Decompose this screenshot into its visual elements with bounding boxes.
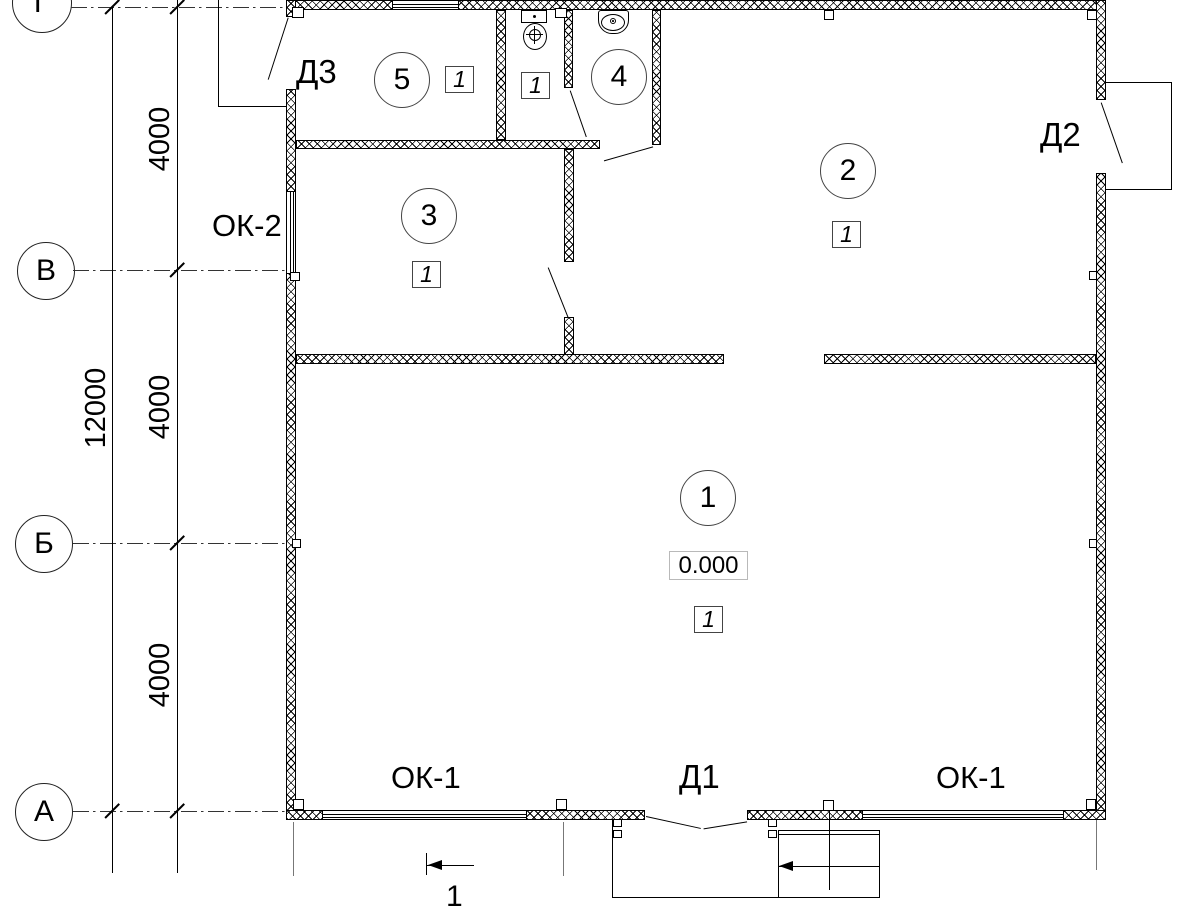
room-number-3: 3 xyxy=(401,188,457,244)
wall-junction-marker xyxy=(556,799,567,810)
door-jamb-marker xyxy=(768,830,777,838)
finish-mark-wc: 1 xyxy=(521,72,550,99)
wall-segment xyxy=(496,10,506,140)
dimension-seg-1: 4000 xyxy=(146,79,176,199)
elevation-mark: 0.000 xyxy=(669,551,748,580)
toilet-tank-dot xyxy=(533,15,536,18)
elevation-text: 0.000 xyxy=(678,552,738,580)
room-number-text: 5 xyxy=(394,63,411,97)
axis-marker-b: Б xyxy=(15,515,73,573)
axis-marker-a: А xyxy=(15,783,73,841)
window-label-ok1-left: ОК-1 xyxy=(391,762,461,793)
wall-junction-marker xyxy=(1086,799,1096,810)
wall-segment xyxy=(1096,173,1106,820)
toilet-bowl xyxy=(523,23,547,50)
dimension-line-overall xyxy=(112,7,113,873)
door-jamb-marker xyxy=(768,819,777,827)
room-number-text: 4 xyxy=(611,60,628,94)
axis-letter: В xyxy=(36,254,56,288)
toilet-drain-cross xyxy=(526,34,543,35)
axis-marker-v: В xyxy=(17,242,75,300)
finish-mark-room3: 1 xyxy=(412,261,441,288)
section-mark-arrow xyxy=(428,860,442,870)
dimension-seg-2: 4000 xyxy=(146,347,176,467)
room-number-text: 3 xyxy=(421,199,438,233)
toilet-drain xyxy=(529,29,541,41)
axis-line-a xyxy=(73,811,286,812)
room-number-4: 4 xyxy=(591,49,647,105)
wall-junction-marker xyxy=(292,7,304,18)
wall-junction-marker xyxy=(1089,539,1097,548)
wall-segment xyxy=(652,10,661,145)
wall-segment xyxy=(1063,810,1106,820)
sink-faucet xyxy=(610,18,616,24)
stair-direction-arrow xyxy=(779,861,793,871)
toilet-drain-cross xyxy=(534,26,535,44)
door-jamb-marker xyxy=(613,830,622,838)
door-leaf-room4 xyxy=(604,146,653,161)
wall-segment xyxy=(286,89,296,192)
room-number-1: 1 xyxy=(680,470,736,526)
porch-left-edge xyxy=(218,0,219,107)
porch-right-top xyxy=(1106,82,1172,83)
wall-junction-marker xyxy=(290,272,300,281)
extension-line xyxy=(293,822,294,876)
room-number-text: 2 xyxy=(840,154,857,188)
axis-line-v xyxy=(73,270,288,271)
door-leaf-d3 xyxy=(267,17,288,79)
door-leaf-room3 xyxy=(547,267,568,318)
wall-junction-marker xyxy=(1087,10,1097,20)
finish-mark-text: 1 xyxy=(702,606,715,633)
room-number-2: 2 xyxy=(820,143,876,199)
door-leaf-wc xyxy=(569,90,586,137)
axis-marker-g: Г xyxy=(12,0,72,33)
window-ok1-left xyxy=(323,810,526,820)
porch-right-edge xyxy=(1171,82,1172,190)
wall-junction-marker xyxy=(555,8,567,18)
door-label-d2: Д2 xyxy=(1040,118,1081,151)
finish-mark-text: 1 xyxy=(453,66,466,93)
door-jamb-marker xyxy=(613,819,622,827)
dimension-overall: 12000 xyxy=(82,328,112,488)
window-ok2 xyxy=(286,192,296,273)
wall-segment xyxy=(296,140,600,149)
wall-junction-marker xyxy=(1089,271,1097,280)
finish-mark-text: 1 xyxy=(420,261,433,288)
wall-junction-marker xyxy=(292,539,301,548)
wall-segment xyxy=(564,149,574,262)
axis-letter: Б xyxy=(34,527,54,561)
finish-mark-room1: 1 xyxy=(694,606,723,633)
dimension-seg-3: 4000 xyxy=(146,615,176,735)
section-mark-number: 1 xyxy=(446,882,463,912)
sink xyxy=(598,10,629,34)
porch-right-bottom xyxy=(1106,189,1172,190)
stair-center-line xyxy=(829,811,830,890)
finish-mark-room5: 1 xyxy=(445,66,474,93)
wall-segment xyxy=(564,10,573,88)
wall-junction-marker xyxy=(823,800,834,811)
porch-left-bottom xyxy=(218,106,287,107)
axis-line-b xyxy=(73,543,291,544)
window-ok1-right xyxy=(863,810,1063,820)
wall-segment xyxy=(564,317,574,355)
door-leaf-d1-right xyxy=(703,821,747,829)
door-leaf-d2 xyxy=(1100,102,1122,163)
toilet-tank xyxy=(521,10,547,23)
wall-segment xyxy=(824,354,1096,364)
room-number-text: 1 xyxy=(700,481,717,515)
wall-segment xyxy=(296,354,724,364)
wall-segment xyxy=(526,810,645,820)
finish-mark-room2: 1 xyxy=(832,221,861,248)
wall-junction-marker xyxy=(293,799,304,810)
axis-letter: А xyxy=(34,795,54,829)
wall-segment xyxy=(747,810,863,820)
door-label-d3: Д3 xyxy=(296,55,337,88)
window-label-ok2: ОК-2 xyxy=(212,210,282,241)
axis-letter: Г xyxy=(34,0,50,20)
finish-mark-text: 1 xyxy=(529,72,542,99)
finish-mark-text: 1 xyxy=(840,221,853,248)
room-number-5: 5 xyxy=(374,52,430,108)
floor-plan: Г В Б А 12000 4000 4000 4000 xyxy=(0,0,1200,900)
wall-segment xyxy=(286,810,323,820)
door-label-d1: Д1 xyxy=(679,760,720,793)
door-leaf-d1-left xyxy=(646,816,701,829)
sink-faucet-dot xyxy=(612,20,614,22)
extension-line xyxy=(1096,820,1097,870)
wall-segment xyxy=(1096,0,1106,100)
extension-line xyxy=(563,822,564,876)
window-top xyxy=(393,0,458,10)
window-label-ok1-right: ОК-1 xyxy=(936,762,1006,793)
wall-junction-marker xyxy=(824,10,834,20)
dimension-line-segments xyxy=(177,0,178,873)
